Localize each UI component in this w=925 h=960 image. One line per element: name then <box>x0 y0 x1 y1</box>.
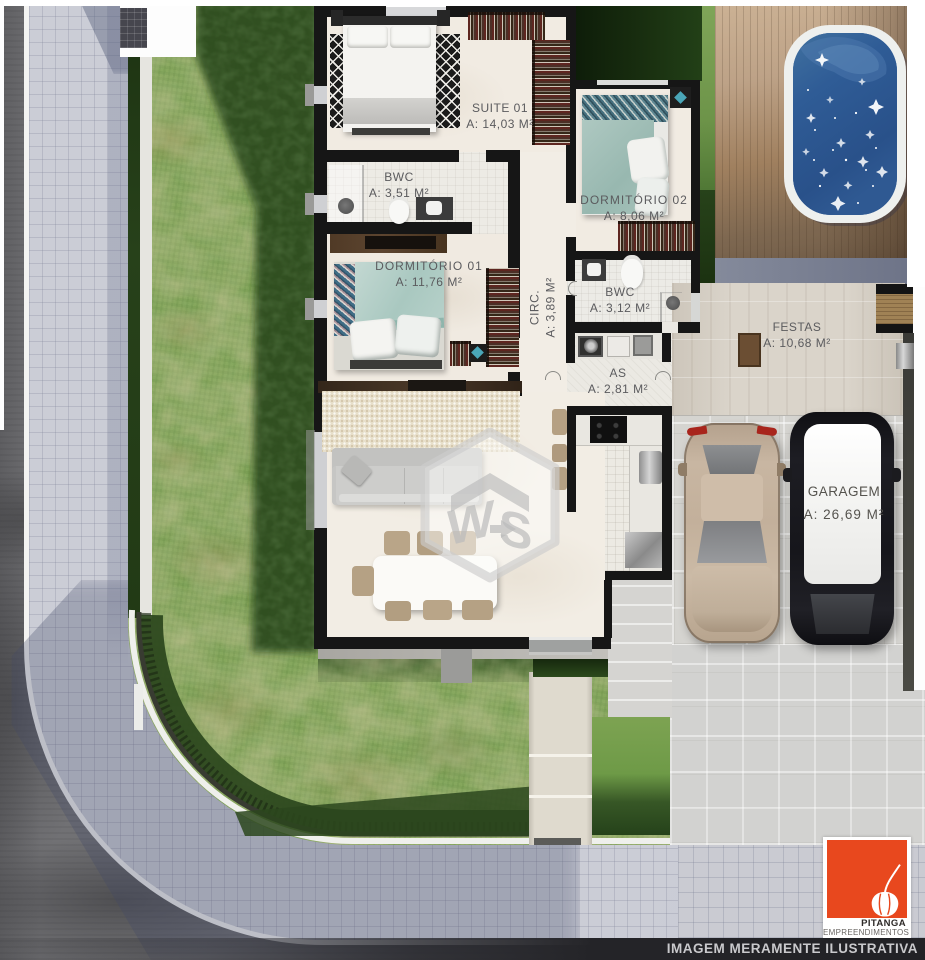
svg-text:W: W <box>447 489 494 557</box>
